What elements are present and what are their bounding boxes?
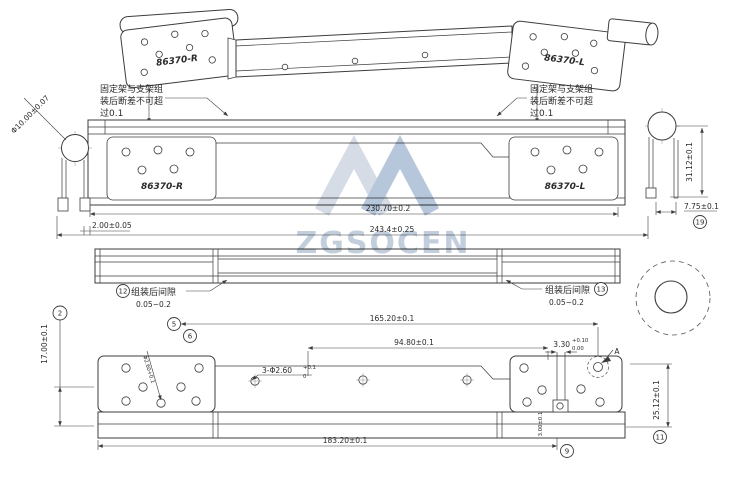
dim-span-outer: 165.20±0.1 — [370, 314, 415, 323]
note-left-line2: 装后断差不可超 — [100, 95, 163, 107]
dim-span-inner: 94.80±0.1 — [394, 338, 434, 347]
right-side-view: 31.12±0.1 7.75±0.1 19 — [645, 108, 719, 229]
left-side-view: Φ10.00±0.07 — [9, 93, 92, 211]
dim-right-height: 25.12±0.1 — [652, 380, 661, 420]
gap-note-left-label: 组装后间隙 — [131, 286, 176, 298]
dim-bottom-height: 17.00±0.1 — [40, 324, 49, 364]
fix-note-left: 固定架与支架组 装后断差不可超 过0.1 — [100, 83, 228, 123]
balloon-13-number: 13 — [597, 286, 606, 294]
dim-tube-dia: Φ10.00±0.07 — [9, 93, 51, 135]
dim-slot-width: 3.30 — [553, 340, 570, 349]
fix-note-right: 固定架与支架组 装后断差不可超 过0.1 — [497, 83, 593, 123]
detail-view-circle — [636, 261, 710, 335]
technical-drawing: 86370-R 86370-L 固定架与支架组 装后断差不可超 过0.1 固 — [0, 0, 750, 478]
gap-note-right: 组装后间隙 13 0.05~0.2 — [506, 280, 608, 307]
part-label-front-right: 86370-R — [141, 182, 183, 192]
top-assembly-view: 86370-R 86370-L — [120, 9, 659, 92]
dim-tab-height: 3.00±0.1 — [538, 412, 544, 437]
balloon-19-number: 19 — [696, 219, 705, 227]
balloon-9-number: 9 — [565, 448, 569, 456]
dim-bottom-span: 183.20±0.1 — [323, 436, 368, 445]
right-tube — [607, 19, 659, 46]
note-right-line2: 装后断差不可超 — [530, 95, 593, 107]
gap-note-right-value: 0.05~0.2 — [549, 298, 584, 307]
balloon-5-number: 5 — [172, 321, 176, 329]
gap-note-left: 12 组装后间隙 0.05~0.2 — [117, 280, 228, 309]
note-left-line3: 过0.1 — [100, 107, 123, 119]
gap-note-right-label: 组装后间隙 — [545, 284, 590, 296]
dim-side-height: 31.12±0.1 — [685, 142, 694, 182]
watermark-text: ZGSOCEN — [295, 226, 470, 261]
note-right-line1: 固定架与支架组 — [530, 83, 593, 95]
note-right-line3: 过0.1 — [530, 107, 553, 119]
dim-holes-callout: 3-Φ2.60 — [262, 366, 292, 375]
top-rail — [236, 26, 512, 77]
balloon-6-number: 6 — [188, 333, 193, 341]
rail-end-cap — [228, 38, 236, 79]
part-label-front-left: 86370-L — [545, 182, 586, 192]
dim-slot-tol-dn: 0.00 — [572, 346, 584, 352]
gap-note-left-value: 0.05~0.2 — [136, 300, 171, 309]
balloon-12-number: 12 — [119, 288, 128, 296]
drawing-canvas: 86370-R 86370-L 固定架与支架组 装后断差不可超 过0.1 固 — [0, 0, 750, 478]
balloon-2-number: 2 — [58, 310, 62, 318]
bottom-view: A — [98, 347, 625, 438]
dim-holes-tol-up: +0.1 — [303, 365, 316, 371]
balloon-11-number: 11 — [656, 434, 665, 442]
dim-side-offset: 7.75±0.1 — [684, 202, 719, 211]
note-left-line1: 固定架与支架组 — [100, 83, 163, 95]
dim-edge-gap: 2.00±0.05 — [92, 221, 132, 230]
datum-label: A — [614, 347, 620, 356]
dim-slot-tol-up: +0.10 — [572, 338, 589, 344]
